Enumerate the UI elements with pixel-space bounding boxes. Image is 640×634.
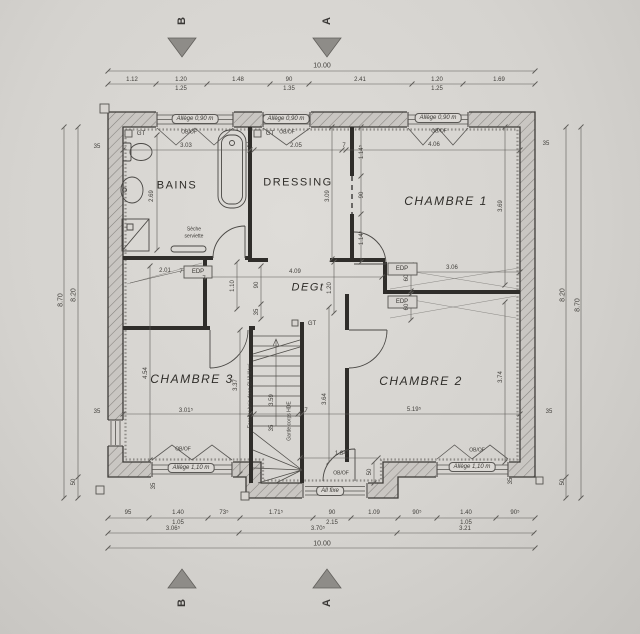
dim-ch2-right: 3.74	[498, 371, 504, 383]
room-label-chambre3: CHAMBRE 3	[150, 373, 234, 385]
gt-tag-stairs: GT	[308, 321, 316, 327]
edp-tag-left: EDP	[192, 269, 204, 275]
room-label-degt: DEGt	[292, 283, 325, 294]
dim-bot-2a: 1.40	[172, 510, 184, 516]
section-letter-b-top: B	[176, 17, 188, 25]
dim-top-6a: 1.20	[431, 77, 443, 83]
dim-stair-359: 3.59	[269, 394, 275, 406]
obof-1: OB/OF	[181, 131, 197, 136]
dim-top-2b: 1.25	[175, 86, 187, 92]
dim-ch1-door: 90	[359, 192, 365, 199]
section-letter-b-bottom: B	[176, 599, 188, 607]
towel-dryer-label-1: Sèche	[187, 228, 201, 233]
dim-win-35-br: 35	[508, 478, 514, 485]
dim-left-870: 8.70	[58, 293, 65, 307]
dim-bot-8a: 1.40	[460, 510, 472, 516]
gt-tag-dressing: GT	[266, 131, 274, 137]
dim-ch1-width: 4.06	[428, 142, 440, 148]
room-label-dressing: DRESSING	[263, 178, 332, 189]
dim-ch1-depth: 3.69	[498, 200, 504, 212]
section-letter-a-top: A	[321, 17, 333, 25]
dim-ch3-width: 3.01⁵	[179, 408, 193, 414]
dim-bot-9: 90⁵	[510, 510, 519, 516]
towel-dryer-label-2: serviette	[185, 235, 204, 240]
dim-wall-35-br: 35	[546, 409, 553, 415]
dim-top-overall: 10.00	[313, 63, 331, 70]
room-label-chambre1: CHAMBRE 1	[404, 195, 488, 207]
obof-3: OB/OF	[431, 130, 447, 135]
dim-ch1-seg-1: 1.14⁵	[359, 145, 365, 159]
dim-bot-11: 3.70⁵	[311, 526, 325, 532]
dim-bot-overall: 10.00	[313, 541, 331, 548]
dim-deg-110: 1.10	[230, 280, 236, 292]
gt-tag-bains: GT	[137, 131, 145, 137]
dim-bains-width: 3.03	[180, 143, 192, 149]
dim-bot-5a: 90	[329, 510, 336, 516]
dim-left-201: 2.01	[159, 268, 171, 274]
dim-stair-35: 35	[269, 425, 275, 432]
dim-wall-306: 3.06	[446, 265, 458, 271]
stair-note: Escalier bois dans CH 'Hêtre'	[249, 364, 254, 429]
dim-wall-35-bl: 35	[94, 409, 101, 415]
dim-7-4: 7	[383, 276, 386, 282]
dim-ch2-width: 5.19⁵	[407, 407, 421, 413]
dim-left-820: 8.20	[71, 288, 78, 302]
section-letter-a-bottom: A	[321, 599, 333, 607]
obof-5: OB/OF	[469, 449, 485, 454]
dim-top-2a: 1.20	[175, 77, 187, 83]
dim-bump-50: 50	[367, 469, 373, 476]
dim-dressing-depth: 3.09	[325, 190, 331, 202]
dim-ch3-right: 3.37	[233, 379, 239, 391]
dim-top-6b: 1.25	[431, 86, 443, 92]
dim-wall-35-tr: 35	[543, 141, 550, 147]
dim-top-4b: 1.35	[283, 86, 295, 92]
obof-2: OB/OF	[279, 131, 295, 136]
dim-7-3: 7	[202, 276, 205, 282]
dim-bot-6: 1.09	[368, 510, 380, 516]
dim-7-2: 7	[342, 143, 345, 149]
dim-ch1-seg-2: 1.14⁵	[359, 231, 365, 245]
dim-deg-width: 4.09	[289, 269, 301, 275]
dim-bains-depth: 2.69	[149, 190, 155, 202]
obof-4: OB/OF	[175, 448, 191, 453]
dim-right-820: 8.20	[560, 288, 567, 302]
dim-win-35-bl: 35	[151, 483, 157, 490]
dim-bot-3: 73⁵	[219, 510, 228, 516]
floor-plan-sheet: BAINSDRESSINGCHAMBRE 1DEGtCHAMBRE 3CHAMB…	[0, 0, 640, 634]
dim-60-2: 60	[404, 304, 410, 311]
dim-wall-35-tl: 35	[94, 144, 101, 150]
dim-bot-12: 3.21	[459, 526, 471, 532]
dim-bot-5b: 2.15	[326, 520, 338, 526]
dim-7-6: 7	[248, 408, 251, 414]
dim-right-50: 50	[560, 479, 566, 486]
window-label-all-fixe: All fixe	[316, 486, 344, 496]
labels-layer: BAINSDRESSINGCHAMBRE 1DEGtCHAMBRE 3CHAMB…	[0, 0, 640, 634]
room-label-chambre2: CHAMBRE 2	[379, 375, 463, 387]
edp-tag-right-1: EDP	[396, 266, 408, 272]
dim-top-5: 2.41	[354, 77, 366, 83]
room-label-bains: BAINS	[157, 181, 198, 192]
dim-ch2-left: 3.64	[322, 393, 328, 405]
dim-60-1: 60	[404, 275, 410, 282]
dim-bot-4: 1.71⁵	[269, 510, 283, 516]
guardrail-note: Garde corps HDE	[288, 401, 293, 440]
dim-bot-10: 3.06⁵	[166, 526, 180, 532]
dim-bot-door: 1.84⁵	[335, 451, 349, 457]
dim-7-5: 7	[179, 269, 182, 275]
window-label-top-3: Allège 0,90 m	[415, 113, 462, 123]
dim-top-3: 1.48	[232, 77, 244, 83]
dim-dressing-width: 2.05	[290, 143, 302, 149]
window-label-top-1: Allège 0,90 m	[172, 114, 219, 124]
dim-7-7: 7	[304, 408, 307, 414]
dim-deg-35: 35	[254, 309, 260, 316]
dim-left-50: 50	[71, 479, 77, 486]
dim-bot-7: 90⁵	[412, 510, 421, 516]
dim-ch3-depth: 4.54	[143, 367, 149, 379]
obof-6: OB/OF	[333, 472, 349, 477]
dim-deg-120: 1.20	[327, 282, 333, 294]
window-label-bottom-left: Allège 1,10 m	[168, 463, 215, 473]
dim-top-1: 1.12	[126, 77, 138, 83]
dim-deg-90: 90	[254, 282, 260, 289]
dim-right-870: 8.70	[575, 298, 582, 312]
window-label-bottom-right: Allège 1,10 m	[449, 462, 496, 472]
dim-top-7: 1.69	[493, 77, 505, 83]
dim-7-1: 7	[246, 143, 249, 149]
dim-bot-1: 95	[125, 510, 132, 516]
dim-top-4a: 90	[286, 77, 293, 83]
window-label-top-2: Allège 0,90 m	[263, 114, 310, 124]
